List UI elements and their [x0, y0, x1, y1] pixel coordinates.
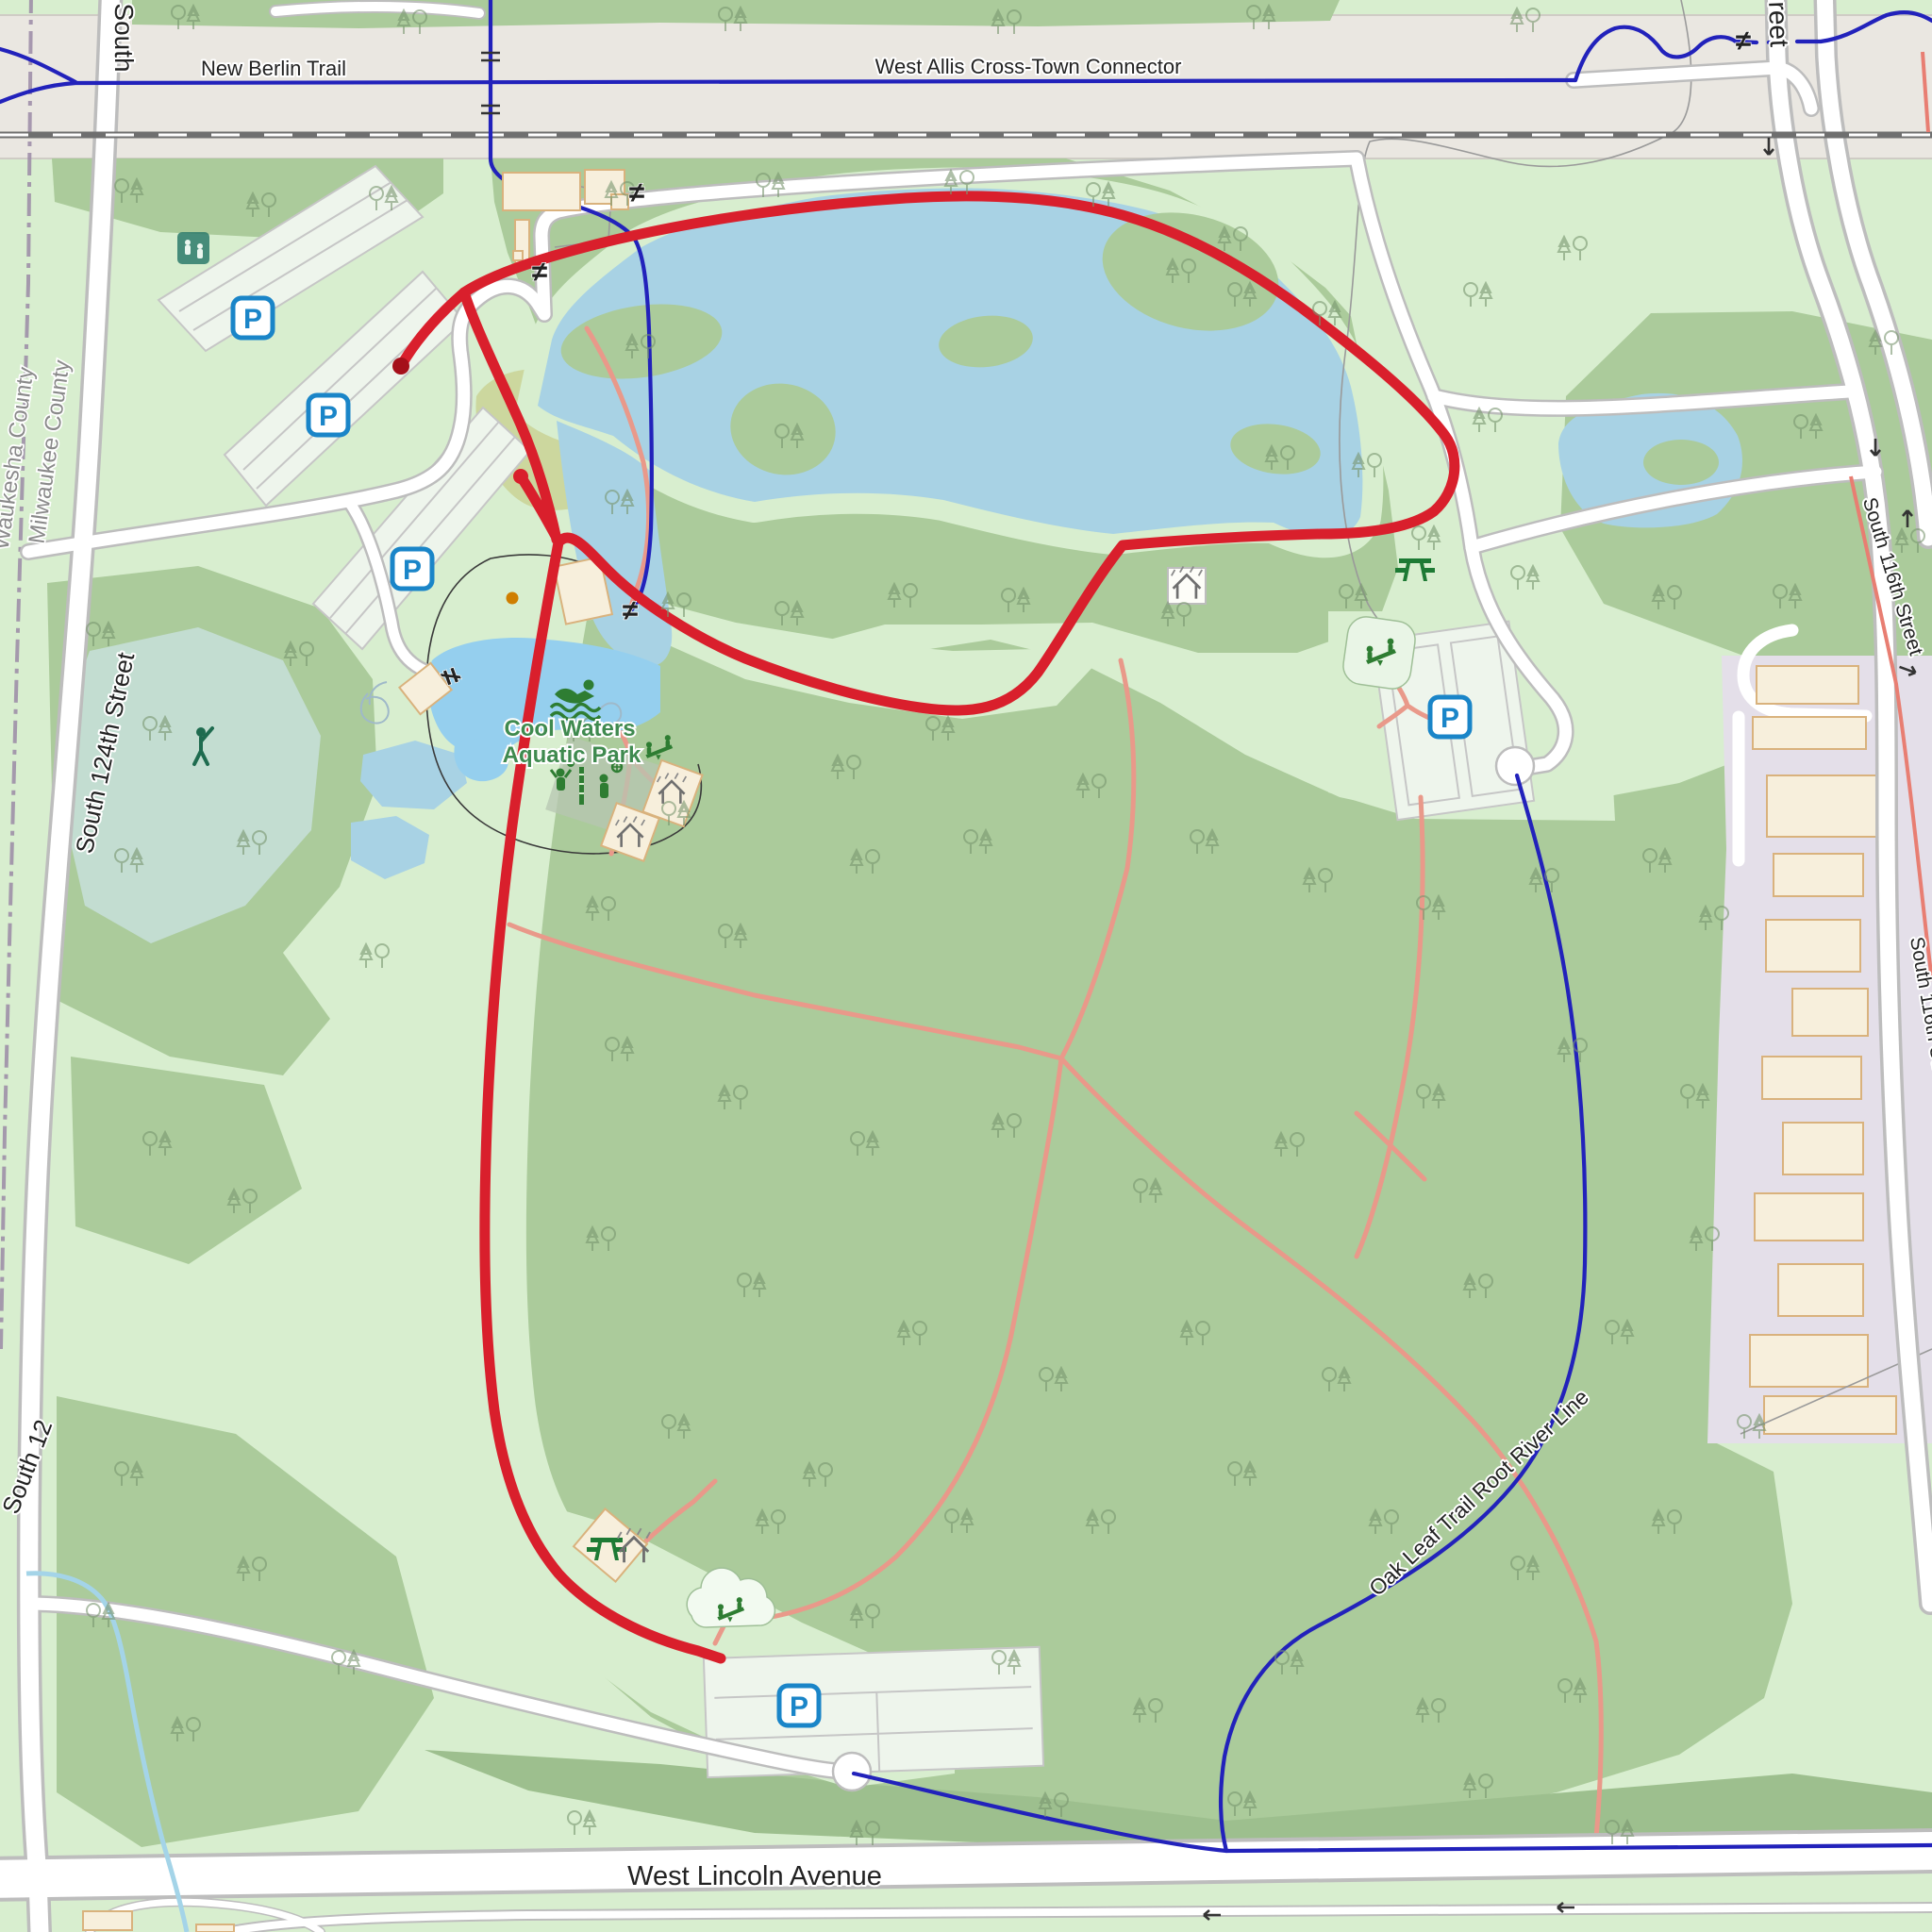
label-cross-town-connector: West Allis Cross-Town Connector [875, 55, 1182, 78]
route-end-blob [513, 469, 528, 484]
parking-icon: P [779, 1686, 819, 1725]
parking-icon: P [233, 298, 273, 338]
gate-icon: ≠ [623, 595, 639, 626]
playground-icon [1341, 614, 1417, 691]
parking-icon: P [392, 549, 432, 589]
label-cool-waters-2: Aquatic Park [503, 742, 641, 768]
svg-text:P: P [403, 555, 422, 586]
label-new-berlin-trail: New Berlin Trail [201, 57, 346, 80]
gate-icon: ≠ [532, 257, 548, 288]
gate-icon: ≠ [629, 177, 645, 208]
map-canvas[interactable]: P P P P P ≠ ≠ ≠ ≠ ≠ [0, 0, 1932, 1932]
label-street-south-partial: South [109, 3, 139, 72]
parking-icon: P [308, 395, 348, 435]
svg-text:P: P [1441, 703, 1459, 734]
label-west-lincoln: West Lincoln Avenue [627, 1861, 882, 1891]
svg-text:P: P [319, 401, 338, 432]
parking-icon: P [1430, 697, 1470, 737]
svg-text:P: P [243, 304, 262, 335]
route-start-marker [392, 358, 409, 375]
svg-text:P: P [790, 1691, 808, 1723]
label-street-reet-partial: reet [1763, 1, 1794, 48]
label-cool-waters-1: Cool Waters [504, 716, 635, 741]
poi-dot [507, 592, 519, 605]
recreation-area-icon [177, 232, 209, 264]
gate-icon: ≠ [1736, 25, 1752, 57]
